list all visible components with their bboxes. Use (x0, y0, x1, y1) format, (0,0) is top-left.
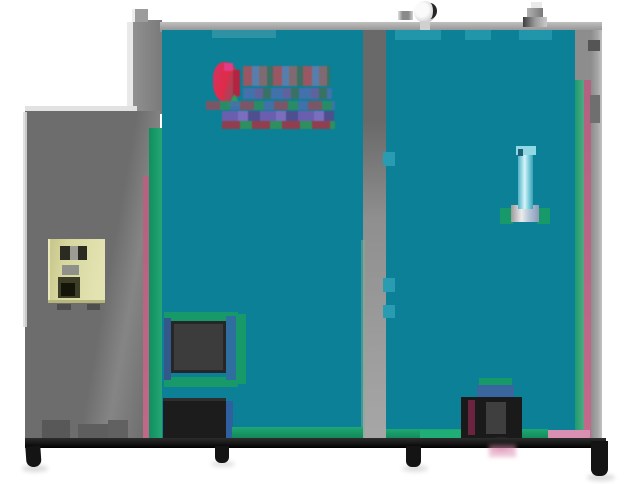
green-strip-left (149, 128, 162, 442)
upper-door-panel (171, 321, 226, 373)
lower-door-panel (163, 401, 226, 442)
logo-row-3 (206, 101, 335, 110)
mid-divider (363, 30, 386, 442)
control-box-foot-2 (87, 304, 100, 310)
burner-box-maroon (468, 400, 475, 435)
panel-highlight-2 (395, 30, 441, 40)
machine-photo (0, 0, 640, 484)
logo-row-2 (243, 88, 332, 99)
pressure-gauge-stem (420, 21, 430, 30)
logo-mark-magenta (224, 63, 233, 71)
cabinet-column (133, 20, 162, 114)
logo-row-5 (222, 121, 335, 129)
control-box-foot-1 (57, 304, 71, 310)
panel-highlight-1 (212, 30, 276, 38)
cabinet-column-highlight (127, 22, 133, 112)
upper-door-frame-left (164, 318, 171, 380)
logo-row-4 (222, 111, 334, 121)
rail-pink-reflection (489, 445, 516, 457)
control-display-glare (70, 246, 78, 260)
foot-1 (25, 446, 41, 468)
upper-door-frame-right (226, 316, 236, 380)
cabinet-shade-2 (78, 424, 108, 439)
right-frame-edge (591, 30, 602, 442)
panel-highlight-6 (383, 278, 395, 292)
right-smudge-1 (588, 40, 600, 51)
right-green-strip (575, 80, 584, 442)
logo-mark-darkred (233, 70, 240, 96)
cabinet-left-highlight (23, 112, 27, 327)
panel-highlight-7 (383, 305, 395, 318)
panel-highlight-5 (383, 152, 395, 166)
cabinet-shade-1 (42, 420, 70, 439)
control-opening-inner (61, 283, 75, 296)
cabinet-shade-3 (108, 420, 128, 439)
foot-3 (406, 446, 421, 467)
sight-glass-tube (518, 147, 533, 209)
pressure-gauge-dial (423, 3, 437, 19)
sight-glass-top-dark (518, 149, 523, 156)
panel-highlight-4 (519, 30, 552, 40)
foot-4 (591, 441, 608, 476)
pipe-fitting (398, 11, 413, 20)
cabinet-column-stub (135, 9, 148, 22)
foot-2 (215, 446, 229, 463)
logo-row-1 (243, 66, 330, 86)
safety-valve-base (523, 17, 547, 27)
mid-divider-green-edge (361, 240, 365, 440)
brand-logo (204, 58, 338, 132)
control-button (62, 265, 79, 275)
right-pink-strip (584, 80, 591, 442)
right-smudge-2 (590, 95, 600, 123)
panel-highlight-3 (465, 30, 491, 40)
base-rail (25, 438, 606, 448)
burner-box-inner (486, 402, 506, 434)
